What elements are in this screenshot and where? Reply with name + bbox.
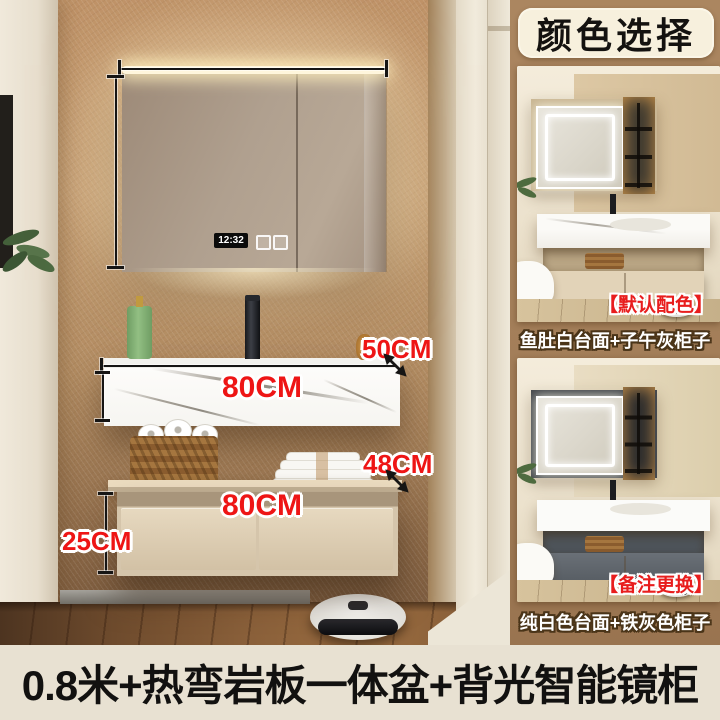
- photo-faucet: [610, 194, 615, 214]
- dim-cap: [98, 571, 113, 574]
- photo-faucet: [610, 480, 615, 500]
- mirror-cabinet: [122, 73, 386, 272]
- door-frame: [456, 0, 488, 645]
- robot-vacuum-sensor: [348, 601, 368, 610]
- power-button-icon[interactable]: [273, 235, 288, 250]
- robot-vacuum-bumper: [318, 619, 398, 635]
- dim-line-mirror-height: [115, 77, 117, 268]
- dim-line-counter-height: [102, 372, 104, 421]
- door-molding: [488, 26, 510, 31]
- remark-change-tag: 【备注更换】: [599, 570, 713, 597]
- mirror-cabinet-door-split: [296, 73, 298, 272]
- dim-label-cabinet-width: 80CM: [222, 489, 302, 523]
- dim-line-mirror-width: [119, 68, 387, 70]
- color-selection-panel: 颜色选择 【默认配色】 鱼肚白台面+子午灰柜子: [510, 0, 720, 645]
- dim-label-cabinet-height: 25CM: [62, 526, 131, 557]
- main-product-scene: 12:32: [0, 0, 510, 645]
- color-option-default-photo[interactable]: 【默认配色】: [517, 66, 720, 322]
- product-poster: 12:32: [0, 0, 720, 720]
- mirror-clock-display: 12:32: [214, 233, 248, 248]
- color-selection-title-badge: 颜色选择: [518, 8, 714, 58]
- dim-cap: [95, 419, 110, 422]
- soap-dispenser: [127, 306, 152, 359]
- default-color-tag: 【默认配色】: [599, 290, 713, 317]
- grey-color-caption: 纯白色台面+铁灰色柜子: [510, 609, 720, 635]
- baseboard: [60, 590, 310, 604]
- dim-cap: [98, 492, 113, 495]
- defog-button-icon[interactable]: [256, 235, 271, 250]
- default-color-caption: 鱼肚白台面+子午灰柜子: [510, 327, 720, 353]
- left-wall: [0, 0, 58, 622]
- photo-led-mirror: [536, 106, 623, 189]
- robot-vacuum: [310, 594, 406, 640]
- dim-cap: [107, 266, 124, 269]
- color-option-grey-photo[interactable]: 【备注更换】: [517, 358, 720, 602]
- product-title: 0.8米+热弯岩板一体盆+背光智能镜柜: [22, 652, 698, 713]
- photo-open-shelf: [543, 531, 703, 553]
- photo-led-mirror: [536, 396, 623, 476]
- depth-arrow-icon: [383, 467, 411, 495]
- depth-arrow-icon: [381, 351, 409, 379]
- dim-line-counter-width: [101, 365, 397, 367]
- footer-bar: 0.8米+热弯岩板一体盆+背光智能镜柜: [0, 645, 720, 720]
- door-panel: [488, 0, 510, 645]
- mirror-cabinet-side-panel: [364, 73, 387, 272]
- dim-cap: [95, 371, 110, 374]
- black-faucet: [245, 297, 260, 359]
- door-wall-edge: [428, 0, 456, 645]
- dim-cap: [385, 60, 388, 77]
- photo-open-shelf: [543, 248, 703, 271]
- photo-display-shelf: [623, 387, 655, 480]
- dim-label-counter-width: 80CM: [222, 371, 302, 405]
- photo-display-shelf: [623, 97, 655, 194]
- wicker-basket: [130, 436, 218, 486]
- dim-cap: [107, 75, 124, 78]
